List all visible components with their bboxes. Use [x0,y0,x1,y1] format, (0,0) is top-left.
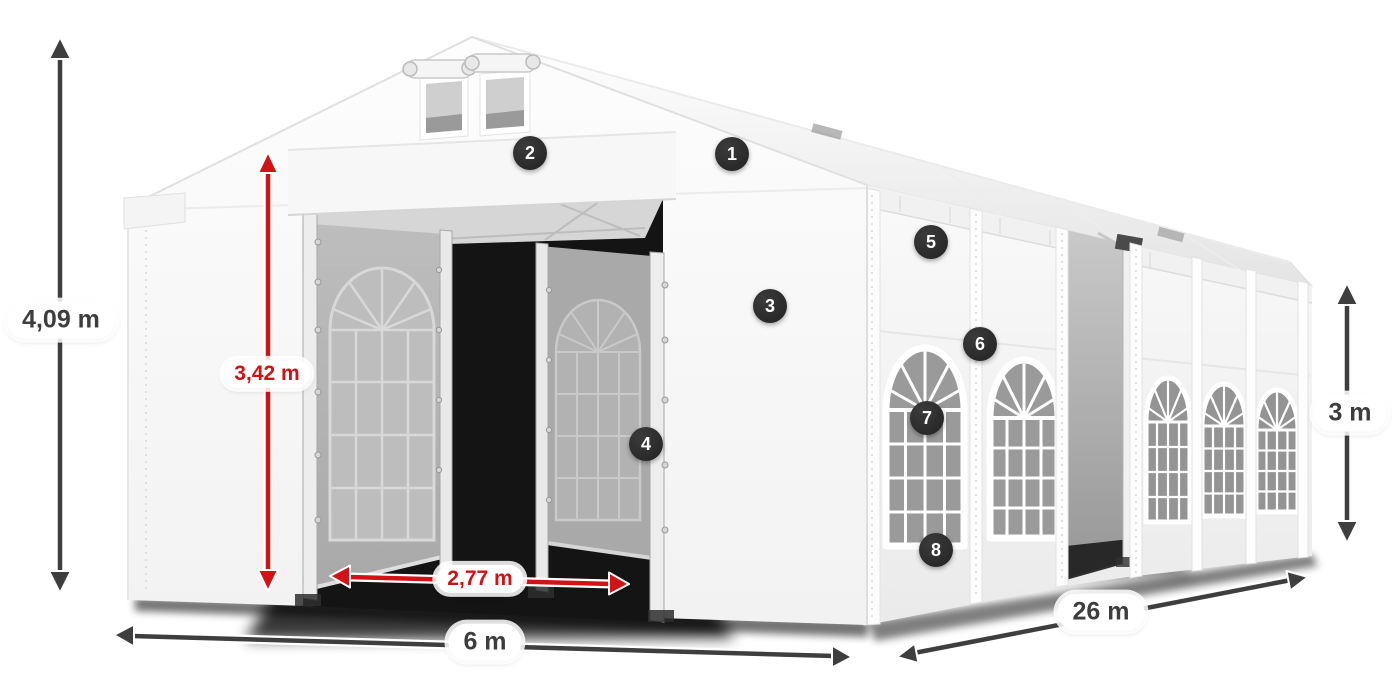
side-window-2 [990,360,1058,538]
dimension-label-front-width: 6 m [448,624,521,661]
side-window-4 [1202,384,1246,516]
callout-badge-3[interactable]: 3 [753,289,787,323]
dimension-label-side-length: 26 m [1058,594,1145,631]
callout-badge-6[interactable]: 6 [963,327,997,361]
tent-diagram: 4,09 m 3,42 m 2,77 m 6 m 26 m 3 m 1 2 3 … [0,0,1400,700]
dimension-label-entrance-width: 2,77 m [436,565,523,593]
side-window-3 [1146,378,1190,522]
side-window-1 [886,348,964,546]
dimension-label-entrance-height: 3,42 m [223,360,310,388]
dimension-label-total-height: 4,09 m [7,302,115,339]
callout-badge-1[interactable]: 1 [715,137,749,171]
callout-badge-7[interactable]: 7 [910,401,944,435]
door-leaf-left [312,224,446,590]
tent-illustration [0,0,1400,700]
side-window-5 [1256,390,1298,512]
callout-badge-4[interactable]: 4 [629,427,663,461]
callout-badge-2[interactable]: 2 [513,136,547,170]
entrance-opening [295,199,674,622]
door-leaf-right [540,246,652,558]
dimension-label-side-height: 3 m [1313,395,1386,432]
callout-badge-5[interactable]: 5 [914,225,948,259]
callout-badge-8[interactable]: 8 [919,533,953,567]
